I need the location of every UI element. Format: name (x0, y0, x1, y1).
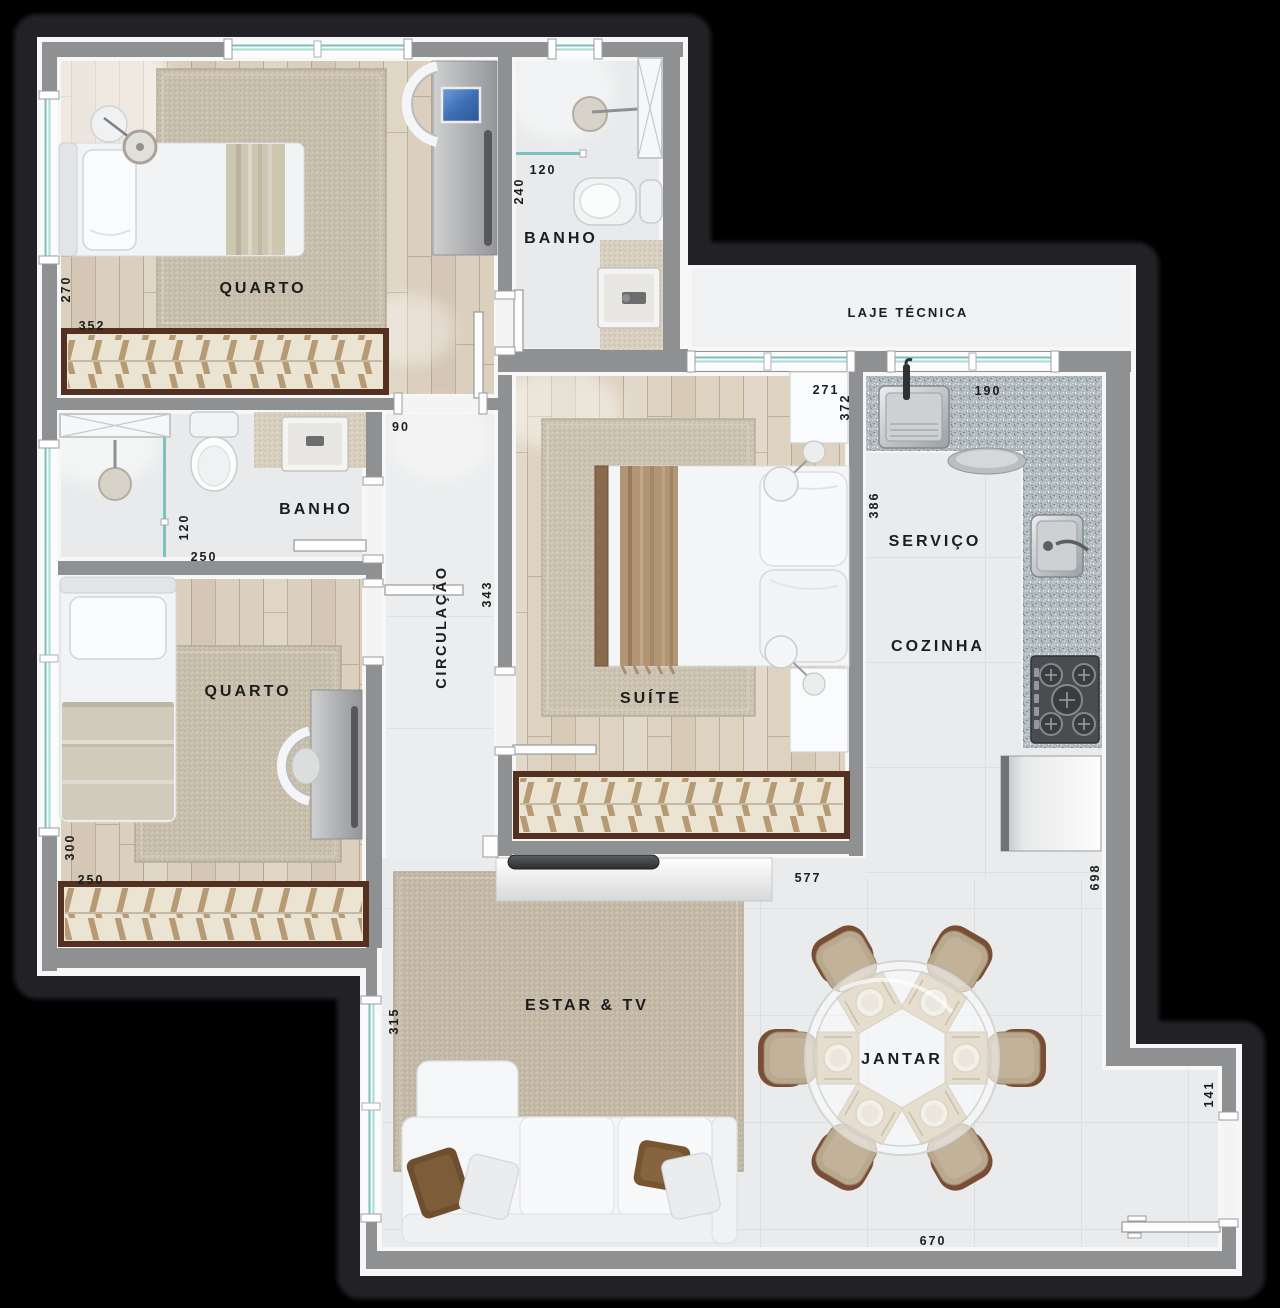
svg-text:698: 698 (1088, 864, 1102, 891)
svg-text:271: 271 (813, 383, 840, 397)
svg-text:250: 250 (191, 550, 218, 564)
svg-text:90: 90 (392, 420, 410, 434)
svg-text:577: 577 (795, 871, 822, 885)
svg-text:372: 372 (838, 394, 852, 421)
svg-text:670: 670 (920, 1234, 947, 1248)
svg-text:ESTAR & TV: ESTAR & TV (525, 997, 649, 1014)
svg-text:CIRCULAÇÃO: CIRCULAÇÃO (432, 565, 450, 688)
svg-text:QUARTO: QUARTO (204, 683, 291, 700)
svg-text:315: 315 (387, 1008, 401, 1035)
svg-text:343: 343 (480, 581, 494, 608)
svg-text:SUÍTE: SUÍTE (620, 688, 682, 707)
svg-text:270: 270 (59, 276, 73, 303)
svg-text:250: 250 (78, 873, 105, 887)
svg-text:BANHO: BANHO (279, 501, 353, 518)
svg-text:COZINHA: COZINHA (891, 638, 985, 655)
svg-text:120: 120 (530, 163, 557, 177)
svg-text:SERVIÇO: SERVIÇO (889, 533, 982, 550)
svg-text:LAJE TÉCNICA: LAJE TÉCNICA (847, 305, 968, 320)
svg-text:QUARTO: QUARTO (219, 280, 306, 297)
svg-text:352: 352 (79, 319, 106, 333)
svg-text:300: 300 (63, 834, 77, 861)
svg-text:240: 240 (512, 178, 526, 205)
svg-text:JANTAR: JANTAR (861, 1051, 943, 1068)
svg-text:120: 120 (177, 514, 191, 541)
svg-text:386: 386 (867, 492, 881, 519)
svg-text:BANHO: BANHO (524, 230, 598, 247)
svg-text:141: 141 (1202, 1081, 1216, 1108)
svg-text:190: 190 (975, 384, 1002, 398)
